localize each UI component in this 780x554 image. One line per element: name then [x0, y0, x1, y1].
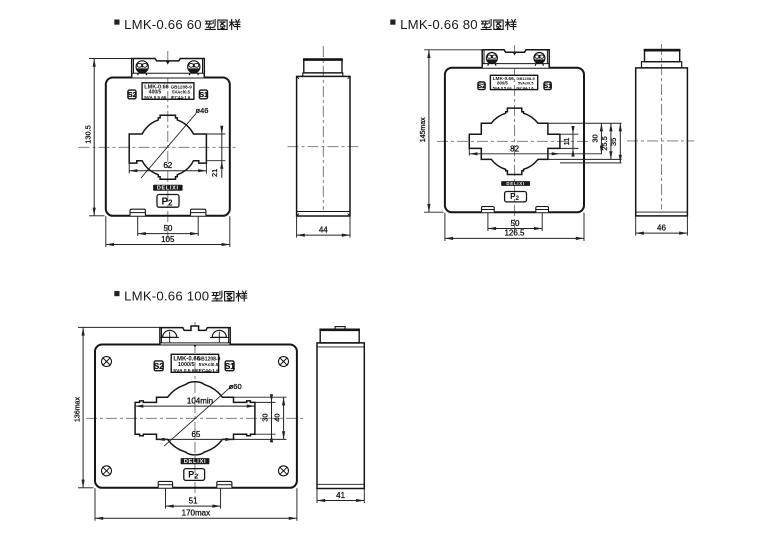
svg-text:136max: 136max — [74, 397, 81, 422]
svg-text:11: 11 — [562, 138, 571, 146]
svg-text:51: 51 — [189, 496, 198, 505]
svg-text:50: 50 — [163, 224, 172, 233]
svg-text:30: 30 — [590, 134, 599, 142]
svg-text:LMK-0.66 100: LMK-0.66 100 — [124, 288, 209, 303]
svg-text:GB1208-9: GB1208-9 — [171, 84, 193, 89]
svg-text:21: 21 — [210, 169, 219, 177]
svg-text:1000/5: 1000/5 — [178, 362, 195, 368]
svg-text:130.5: 130.5 — [84, 125, 93, 144]
svg-text:50: 50 — [511, 219, 520, 228]
svg-text:IEC44-1 6: IEC44-1 6 — [516, 86, 533, 90]
svg-text:S1: S1 — [225, 362, 235, 371]
svg-text:5VAcl0.5: 5VAcl0.5 — [518, 82, 534, 86]
svg-text:S2: S2 — [154, 362, 164, 371]
svg-text:P2: P2 — [188, 470, 198, 481]
svg-text:P2: P2 — [162, 196, 174, 207]
svg-text:ø60: ø60 — [229, 382, 242, 391]
svg-text:5VA 0.5 66: 5VA 0.5 66 — [173, 368, 197, 374]
svg-text:DELIXI: DELIXI — [184, 459, 207, 465]
svg-text:44: 44 — [319, 225, 328, 234]
svg-text:35: 35 — [609, 138, 618, 146]
svg-text:S1: S1 — [199, 90, 208, 99]
svg-text:LMK-0.66 60: LMK-0.66 60 — [124, 17, 202, 32]
svg-text:46: 46 — [657, 223, 666, 232]
svg-text:LMK-0.66 80: LMK-0.66 80 — [400, 17, 478, 32]
svg-text:DELIXI: DELIXI — [506, 181, 524, 186]
svg-text:62: 62 — [163, 161, 172, 170]
svg-text:170max: 170max — [182, 509, 210, 518]
svg-text:IEC44-1 6: IEC44-1 6 — [197, 368, 219, 374]
svg-text:5VAcl0.5: 5VAcl0.5 — [199, 362, 219, 368]
svg-text:105: 105 — [161, 235, 175, 244]
svg-text:S2: S2 — [478, 83, 486, 90]
svg-text:25.5: 25.5 — [600, 136, 609, 150]
svg-text:126.5: 126.5 — [504, 229, 525, 238]
svg-text:104min: 104min — [187, 396, 213, 405]
svg-text:82: 82 — [510, 144, 519, 153]
svg-text:40: 40 — [273, 413, 282, 421]
svg-text:41: 41 — [336, 491, 345, 500]
svg-text:DELIXI: DELIXI — [157, 186, 179, 192]
svg-text:S1: S1 — [544, 83, 552, 90]
svg-text:GB1208-9: GB1208-9 — [197, 356, 220, 362]
svg-text:IEC44-1 6: IEC44-1 6 — [171, 95, 191, 100]
svg-text:5VA 0.5 66: 5VA 0.5 66 — [493, 85, 513, 90]
svg-text:GB1208-9: GB1208-9 — [516, 76, 535, 81]
svg-text:S2: S2 — [128, 90, 137, 99]
svg-text:30: 30 — [260, 413, 269, 421]
svg-text:5VA 0.5 66: 5VA 0.5 66 — [144, 95, 167, 100]
svg-text:65: 65 — [191, 430, 200, 439]
svg-text:145max: 145max — [420, 117, 427, 142]
svg-text:5VAcl0.5: 5VAcl0.5 — [172, 90, 191, 95]
svg-text:ø46: ø46 — [196, 106, 209, 115]
